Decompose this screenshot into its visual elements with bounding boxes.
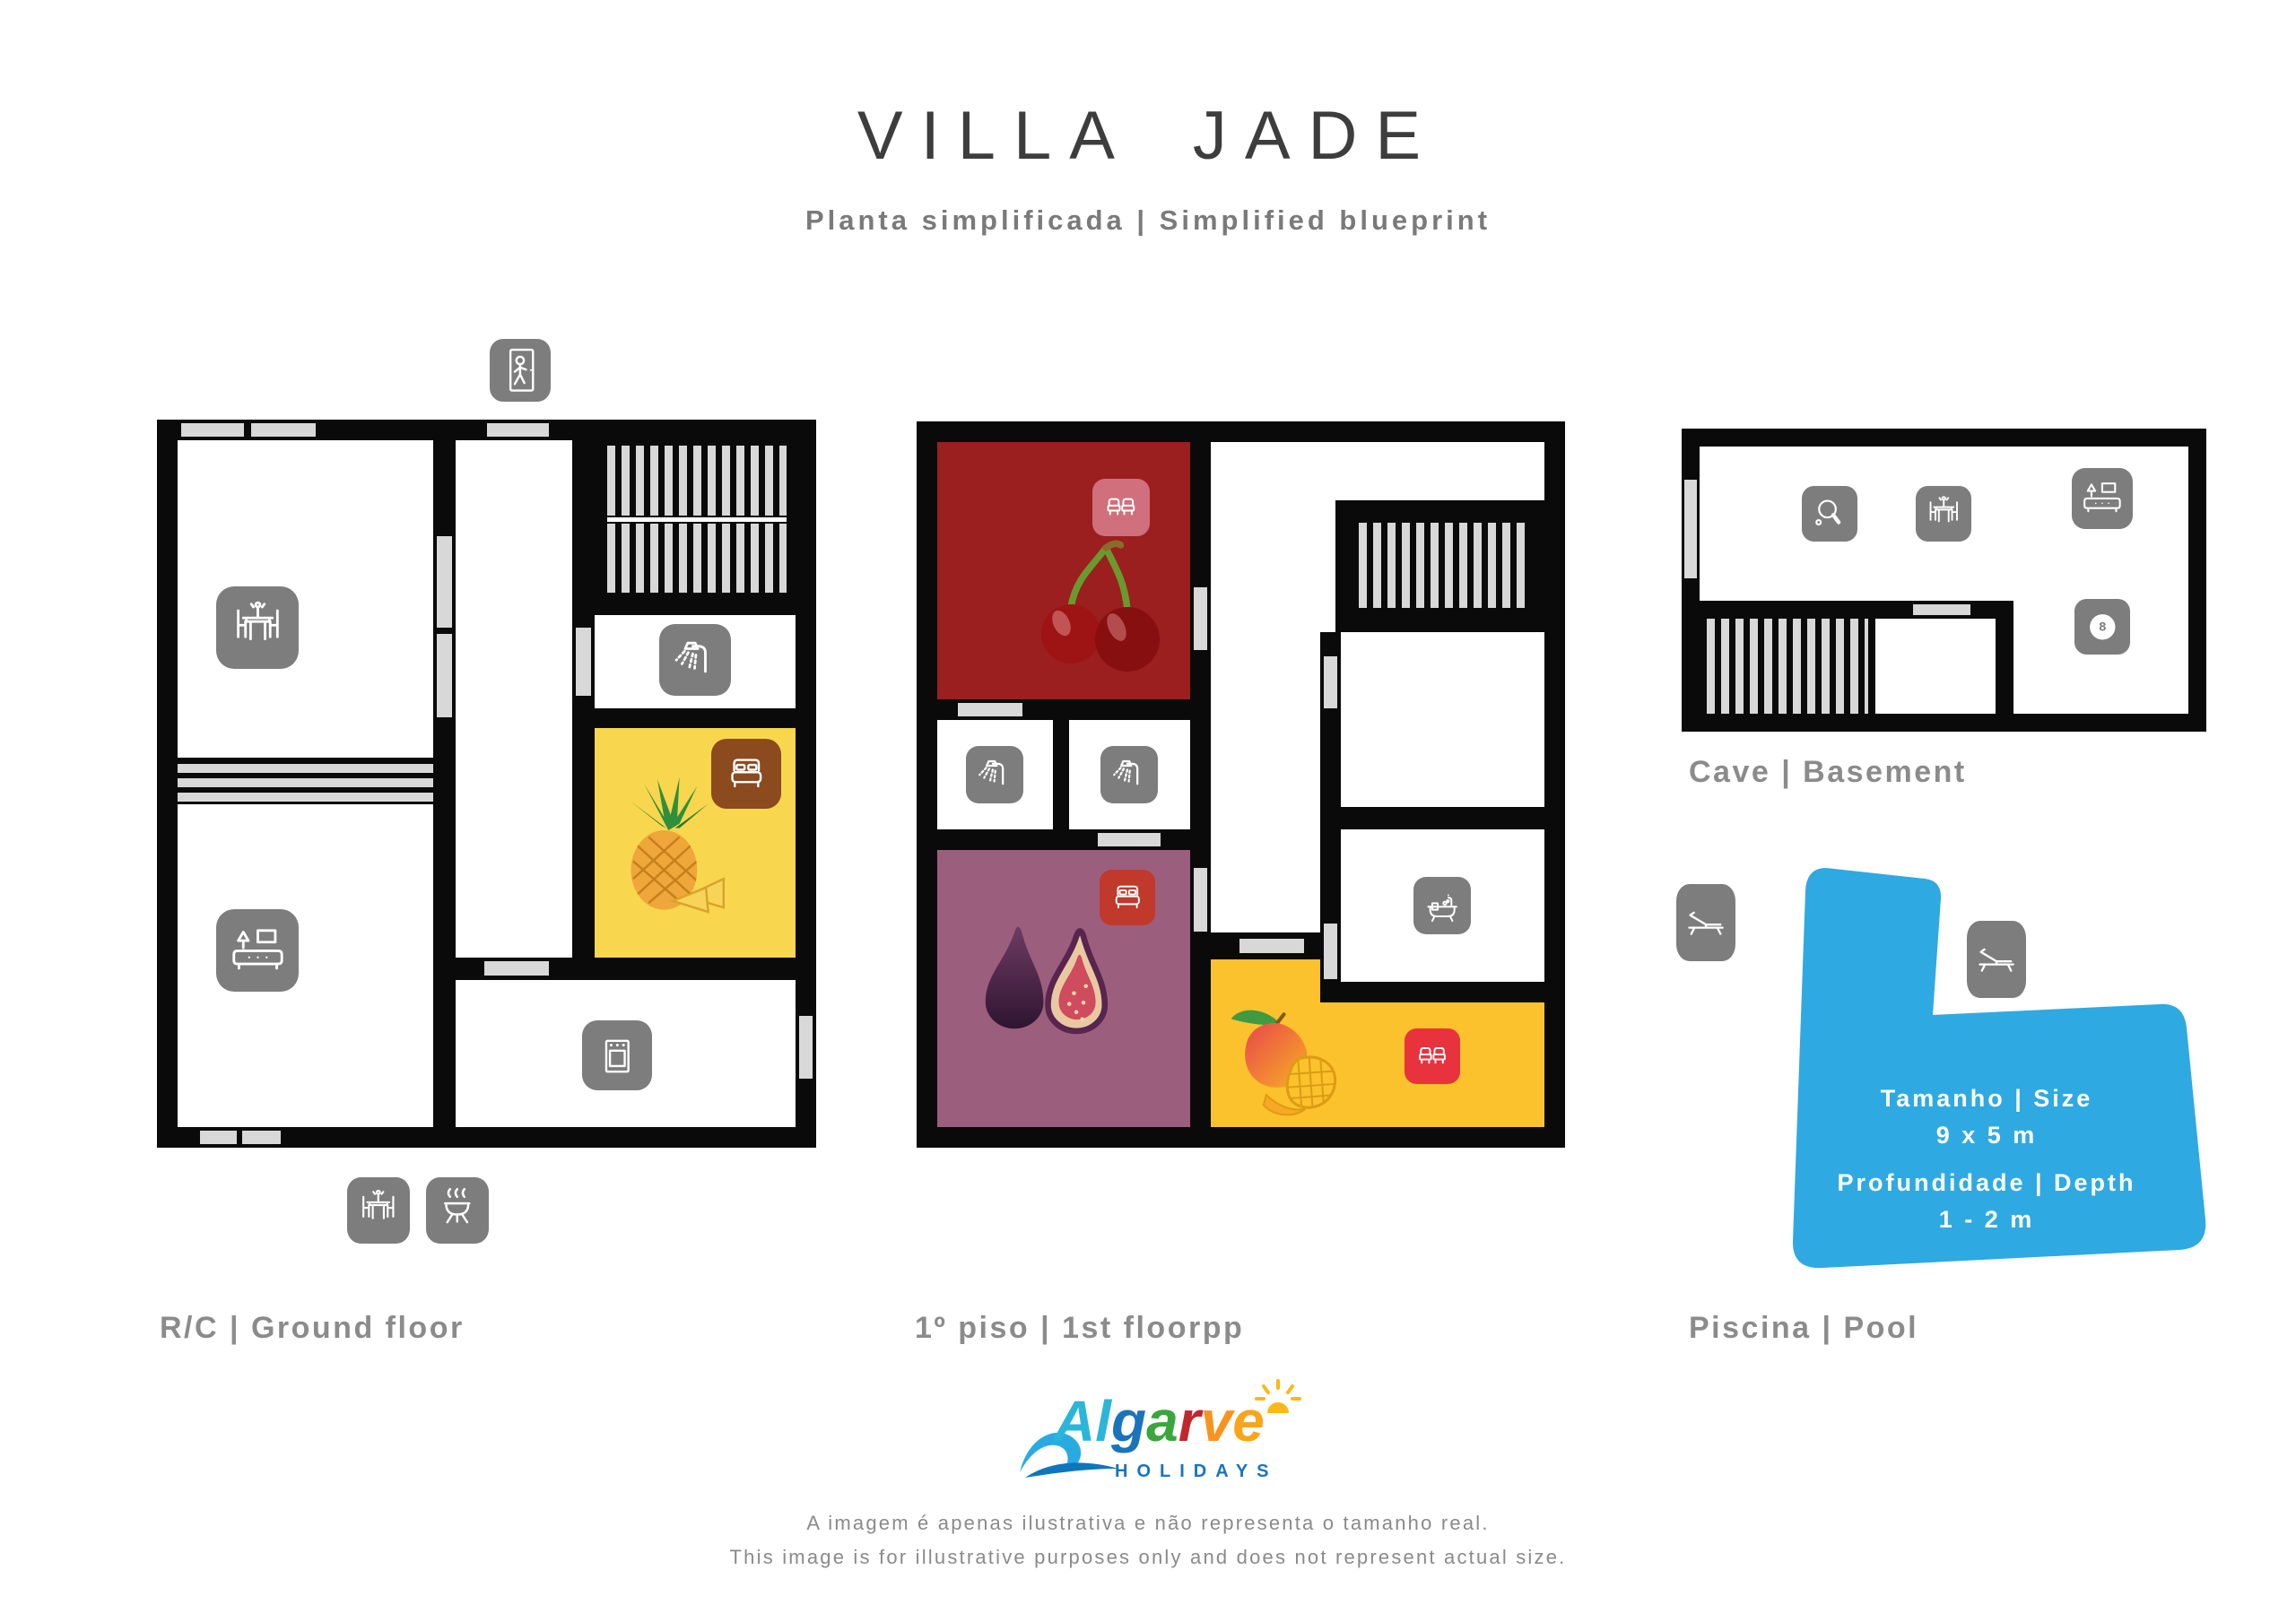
bedroom-cherry xyxy=(937,442,1190,699)
twin-beds-icon xyxy=(1092,479,1150,536)
bedroom-pineapple xyxy=(595,728,796,958)
sun-lounger-icon xyxy=(1676,884,1735,961)
twin-beds-icon xyxy=(1405,1028,1460,1084)
bathtub-icon xyxy=(1413,877,1471,934)
dining-table-icon xyxy=(216,586,299,669)
door-marker xyxy=(1239,939,1304,953)
door-marker xyxy=(958,703,1022,716)
pool-size-value: 9 x 5 m xyxy=(1834,1117,2139,1154)
wall xyxy=(1682,429,1700,732)
door-marker xyxy=(1098,833,1161,846)
wall xyxy=(1996,601,2013,732)
wall xyxy=(1682,429,2206,447)
pool-shape: Tamanho | Size 9 x 5 m Profundidade | De… xyxy=(1749,861,2224,1282)
first-floor-label: 1º piso | 1st floorpp xyxy=(915,1311,1244,1346)
door-marker xyxy=(576,628,591,696)
wall xyxy=(1682,714,2206,732)
window-marker xyxy=(1684,480,1697,578)
partition-stripes xyxy=(178,758,433,804)
door-marker xyxy=(200,1131,237,1144)
window-marker xyxy=(251,423,316,437)
double-bed-icon xyxy=(711,739,781,809)
staircase xyxy=(1700,619,1875,714)
mango-image xyxy=(1213,1000,1352,1125)
ping-pong-icon xyxy=(1802,486,1857,542)
blueprint-page: { "header": { "title": "VILLA JADE", "su… xyxy=(0,0,2296,1622)
door-marker xyxy=(1913,604,1970,615)
wall xyxy=(917,421,1565,442)
pool-size-label: Tamanho | Size xyxy=(1834,1080,2139,1117)
door-marker xyxy=(1194,868,1207,932)
wall xyxy=(1544,421,1565,1148)
logo-letter: g xyxy=(1111,1389,1146,1453)
door-marker xyxy=(437,536,452,628)
pool-depth-value: 1 - 2 m xyxy=(1834,1201,2139,1238)
door-marker xyxy=(1324,924,1337,979)
entrance-walk-icon xyxy=(490,339,551,402)
wall xyxy=(433,420,456,1148)
pool-info: Tamanho | Size 9 x 5 m Profundidade | De… xyxy=(1834,1080,2139,1238)
wall xyxy=(917,421,937,1148)
wall xyxy=(917,829,1211,850)
page-title: VILLA JADE xyxy=(0,97,2296,175)
disclaimer-en: This image is for illustrative purposes … xyxy=(0,1546,2296,1569)
algarve-holidays-logo: Algarve HOLIDAYS xyxy=(1027,1388,1350,1496)
door-marker xyxy=(437,634,452,717)
wall xyxy=(1320,982,1544,1002)
shower-icon xyxy=(1100,746,1158,803)
entrance-door-marker xyxy=(487,423,549,437)
window-marker xyxy=(181,423,244,437)
billiards-icon xyxy=(2074,599,2130,655)
door-marker xyxy=(484,961,549,976)
figs-image xyxy=(969,906,1126,1063)
sofa-tv-icon xyxy=(2072,468,2133,529)
cherries-image xyxy=(1022,532,1184,693)
wall xyxy=(2188,429,2206,732)
wall xyxy=(572,420,595,980)
wall xyxy=(1053,720,1069,829)
double-bed-icon xyxy=(1100,870,1155,925)
staircase xyxy=(1335,500,1544,632)
logo-letter: l xyxy=(1095,1389,1111,1453)
pool-label: Piscina | Pool xyxy=(1689,1311,1918,1346)
logo-letter: A xyxy=(1054,1389,1095,1453)
first-floor-plan xyxy=(917,421,1565,1148)
logo-letter: v xyxy=(1201,1389,1233,1453)
oven-icon xyxy=(582,1020,652,1090)
basement-plan xyxy=(1682,429,2206,732)
bedroom-fig xyxy=(937,850,1190,1127)
wall xyxy=(1320,807,1544,829)
shower-icon xyxy=(659,624,731,696)
disclaimer-pt: A imagem é apenas ilustrativa e não repr… xyxy=(0,1512,2296,1535)
basement-label: Cave | Basement xyxy=(1689,755,1967,790)
logo-letter: a xyxy=(1146,1389,1178,1453)
shower-icon xyxy=(966,746,1023,803)
window-marker xyxy=(1324,656,1337,708)
window-marker xyxy=(799,1016,813,1079)
staircase xyxy=(595,440,796,615)
door-marker xyxy=(1194,587,1207,650)
barbecue-icon xyxy=(426,1177,489,1244)
door-marker xyxy=(242,1131,281,1144)
bedroom-mango-upper xyxy=(1211,959,1320,1002)
logo-letter: r xyxy=(1178,1389,1201,1453)
wall xyxy=(157,420,178,1148)
outdoor-dining-icon xyxy=(347,1177,410,1244)
logo-holidays-text: HOLIDAYS xyxy=(1115,1462,1278,1482)
sofa-icon xyxy=(216,909,299,992)
logo-wordmark: Algarve xyxy=(1054,1388,1265,1454)
pool-depth-label: Profundidade | Depth xyxy=(1834,1165,2139,1201)
ground-floor-plan xyxy=(157,420,816,1148)
ground-floor-label: R/C | Ground floor xyxy=(160,1311,465,1346)
wall xyxy=(1190,421,1211,1127)
sun-icon xyxy=(1253,1377,1303,1420)
wall xyxy=(917,1127,1565,1148)
dining-table-icon xyxy=(1916,486,1971,542)
storage-room xyxy=(1875,619,1996,714)
page-subtitle: Planta simplificada | Simplified bluepri… xyxy=(0,204,2296,237)
wall xyxy=(595,708,816,728)
